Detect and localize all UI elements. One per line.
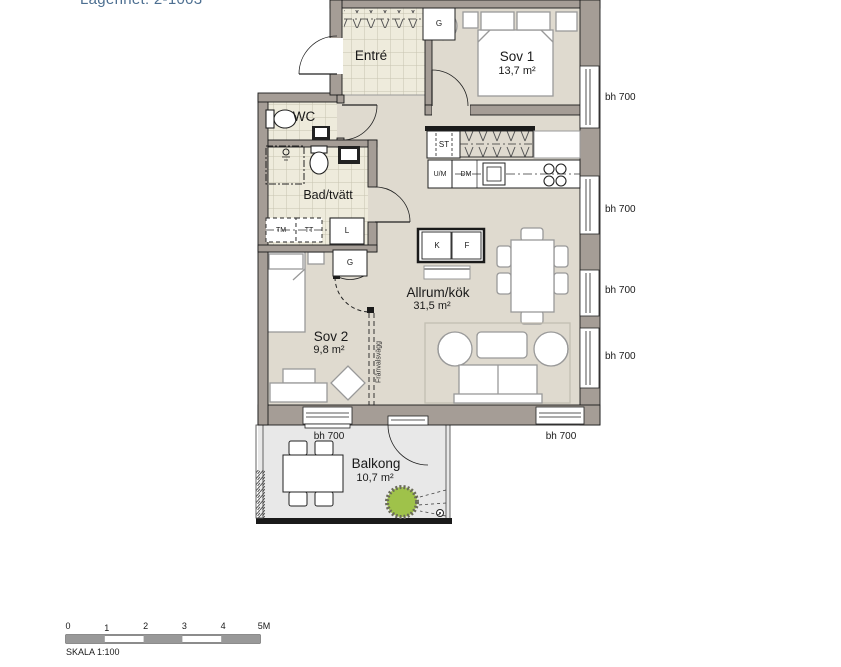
coffee-table bbox=[477, 332, 527, 358]
fixture-label-st: ST bbox=[439, 141, 449, 149]
scale-tick-4: 4 bbox=[221, 622, 226, 631]
sill-label-right-4: bh 700 bbox=[605, 352, 636, 362]
balcony-chair bbox=[315, 441, 333, 455]
room-area-sov1: 13,7 m² bbox=[498, 66, 535, 77]
window-right-4 bbox=[580, 328, 599, 388]
room-label-wc: WC bbox=[293, 110, 316, 124]
room-label-sov1: Sov 1 bbox=[500, 50, 535, 64]
fixture-label-g-sov2: G bbox=[347, 259, 353, 267]
room-label-sov2: Sov 2 bbox=[314, 330, 349, 344]
room-label-bad: Bad/tvätt bbox=[303, 189, 352, 202]
dining-chair bbox=[497, 273, 511, 294]
sill-label-balcony: bh 700 bbox=[314, 432, 345, 442]
scale-tick-0: 0 bbox=[65, 622, 70, 631]
wall-bad-east bbox=[368, 140, 377, 187]
sill-label-living: bh 700 bbox=[546, 432, 577, 442]
dining-chair bbox=[554, 273, 568, 294]
sov1-door-opening bbox=[432, 104, 470, 116]
window-living-bottom bbox=[536, 407, 584, 424]
wall-wc-north bbox=[258, 93, 342, 102]
bush-icon bbox=[387, 487, 417, 517]
pillow bbox=[269, 254, 303, 269]
nightstand bbox=[308, 252, 324, 264]
room-area-balkong: 10,7 m² bbox=[356, 473, 393, 484]
fixture-label-tt: TT bbox=[305, 227, 314, 234]
dining-chair bbox=[521, 228, 543, 241]
balcony-table bbox=[283, 455, 343, 492]
dining-chair bbox=[497, 246, 511, 267]
optional-wall-label: Frånvalsvägg bbox=[376, 341, 383, 383]
balcony-railing-hatch bbox=[256, 470, 265, 518]
counter-top bbox=[534, 131, 580, 158]
balcony-door-threshold bbox=[388, 416, 428, 425]
nightstand bbox=[556, 12, 577, 31]
sill-label-right-3: bh 700 bbox=[605, 286, 636, 296]
window-right-2 bbox=[580, 176, 599, 234]
balcony-chair bbox=[289, 441, 307, 455]
window-right-1 bbox=[580, 66, 599, 128]
room-area-sov2: 9,8 m² bbox=[313, 345, 344, 356]
scalebar-graphic bbox=[66, 635, 260, 643]
scale-caption: SKALA 1:100 bbox=[66, 648, 120, 657]
fixture-label-k: K bbox=[434, 242, 439, 250]
scale-tick-3: 3 bbox=[182, 622, 187, 631]
floorplan-page: Lägenhet: 2-1003 Entré Sov 1 13,7 m² WC … bbox=[0, 0, 841, 667]
window-right-3 bbox=[580, 270, 599, 316]
wall-wc-east bbox=[337, 95, 344, 103]
wall-top bbox=[330, 0, 600, 8]
window-sov2-balcony bbox=[303, 407, 352, 428]
fixture-label-um: U/M bbox=[434, 171, 447, 178]
scale-tick-1: 1 bbox=[104, 624, 109, 633]
plan-title: Lägenhet: 2-1003 bbox=[80, 0, 202, 8]
fixture-label-f: F bbox=[465, 242, 470, 250]
dining-chair bbox=[554, 246, 568, 267]
kitchen bbox=[425, 126, 580, 188]
toilet-icon bbox=[310, 152, 328, 174]
floorplan-drawing bbox=[0, 0, 841, 667]
nightstand bbox=[463, 12, 478, 28]
balcony-chair bbox=[315, 492, 333, 506]
dining-chair bbox=[521, 311, 543, 324]
toilet-tank bbox=[266, 110, 274, 128]
balcony-edge bbox=[256, 518, 452, 524]
pillow bbox=[481, 12, 514, 30]
desk-chair bbox=[283, 369, 315, 383]
room-area-allrum: 31,5 m² bbox=[413, 301, 450, 312]
scale-tick-2: 2 bbox=[143, 622, 148, 631]
room-label-entre: Entré bbox=[355, 49, 387, 63]
balcony-chair bbox=[289, 492, 307, 506]
fixture-label-tm: TM bbox=[276, 227, 286, 234]
pillow bbox=[517, 12, 550, 30]
scale-tick-5: 5M bbox=[258, 622, 271, 631]
wall-sov1-south bbox=[470, 105, 580, 115]
sofa-back bbox=[454, 394, 542, 403]
sill-label-right-1: bh 700 bbox=[605, 93, 636, 103]
bench bbox=[424, 266, 470, 279]
entry-door-opening bbox=[329, 38, 343, 74]
kitchen-sink bbox=[483, 163, 505, 185]
fixture-label-g-entre: G bbox=[436, 20, 442, 28]
room-label-balkong: Balkong bbox=[352, 457, 401, 471]
fixture-label-l: L bbox=[345, 227, 349, 235]
dining-table bbox=[511, 240, 554, 312]
fixture-label-dm: DM bbox=[461, 171, 472, 178]
desk bbox=[270, 383, 327, 402]
wall-left bbox=[258, 95, 268, 425]
room-label-allrum: Allrum/kök bbox=[406, 286, 469, 300]
sill-label-right-2: bh 700 bbox=[605, 205, 636, 215]
